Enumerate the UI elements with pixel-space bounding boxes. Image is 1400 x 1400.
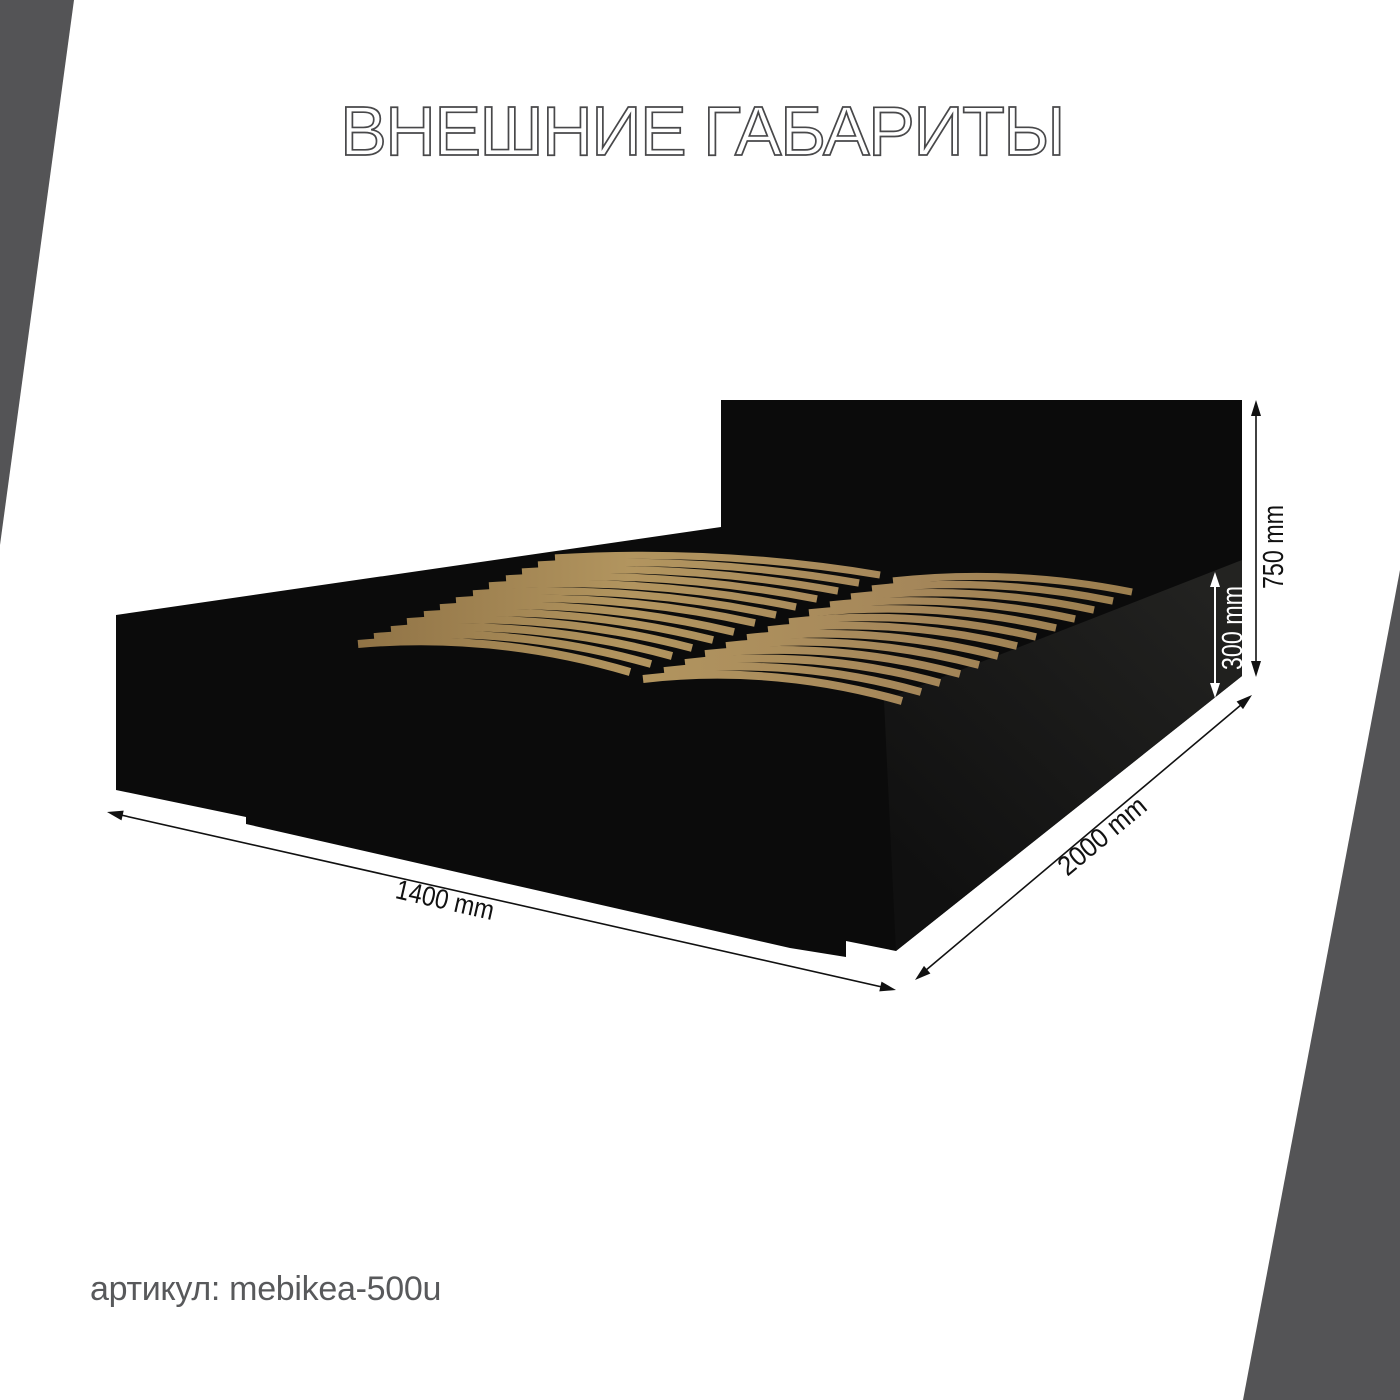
svg-text:артикул: mebikea-500u: артикул: mebikea-500u [90, 1270, 441, 1308]
svg-text:ВНЕШНИЕ ГАБАРИТЫ: ВНЕШНИЕ ГАБАРИТЫ [340, 92, 1064, 170]
svg-text:300 mm: 300 mm [1217, 586, 1249, 670]
svg-text:750 mm: 750 mm [1258, 505, 1290, 589]
